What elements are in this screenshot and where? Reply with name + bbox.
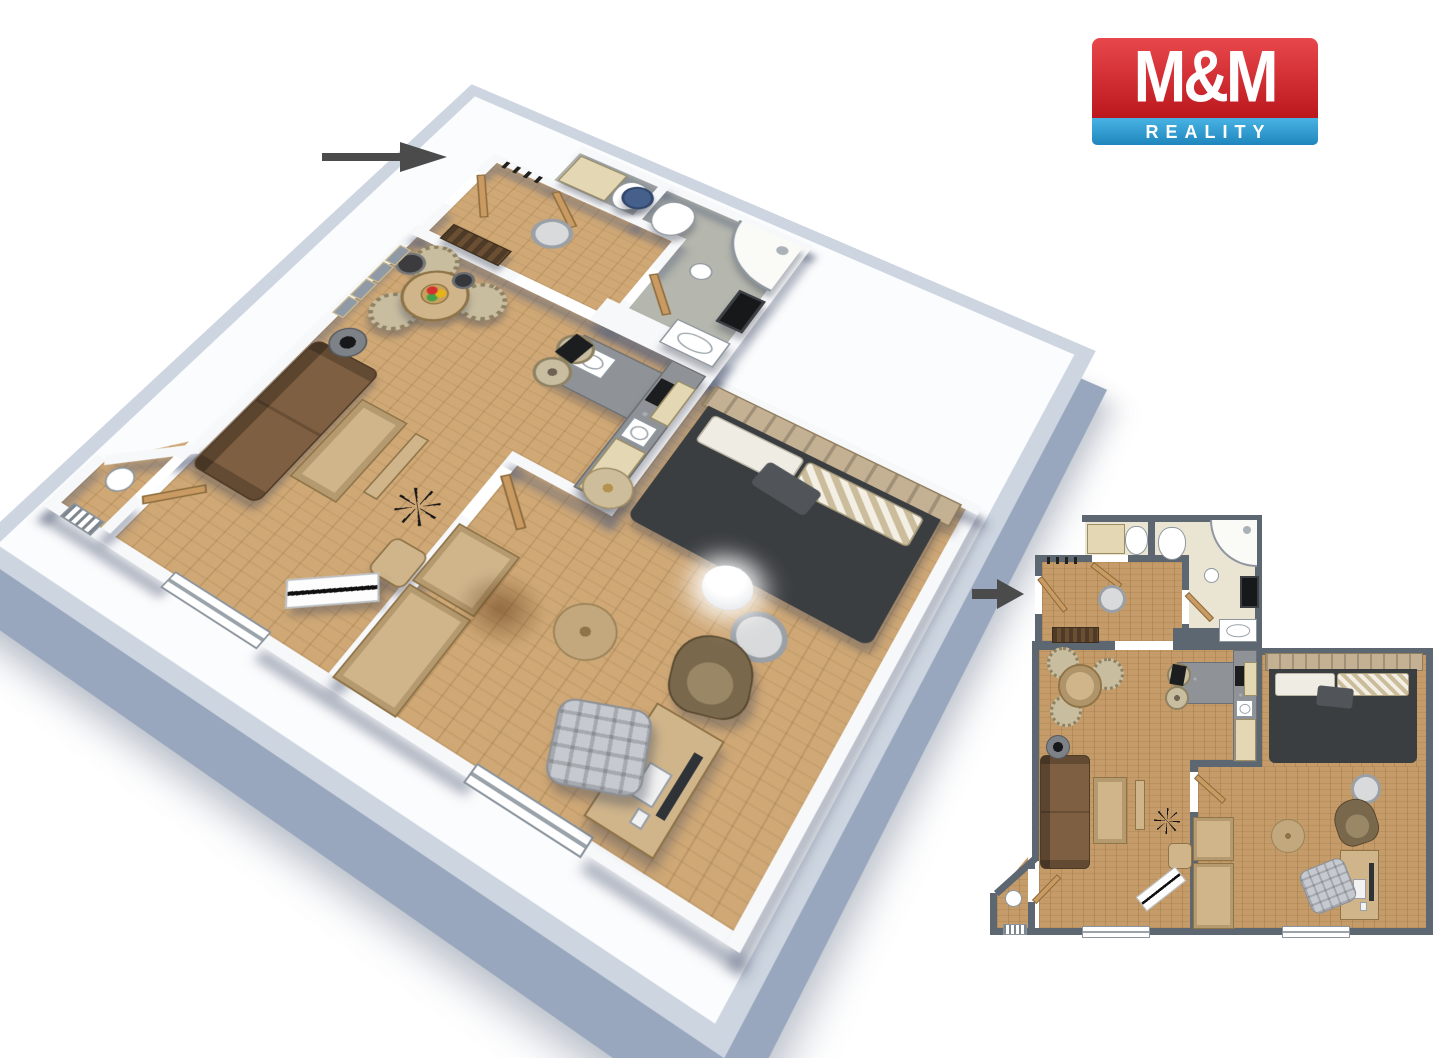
wall-left-hall-upper [1035, 562, 1042, 576]
round-dining-table [1058, 664, 1102, 708]
hall-ceiling-light [1098, 585, 1126, 613]
wardrobe-upper [1193, 817, 1234, 861]
balcony-radiator [1003, 924, 1027, 935]
logo-blue-panel: REALITY [1092, 118, 1318, 145]
wall-balcony-living-upper [1028, 861, 1035, 869]
living-pouf [1168, 843, 1192, 869]
wall-bottom-bedroom [1348, 928, 1433, 935]
wardrobe-lower [1193, 863, 1234, 929]
logo-red-panel: M&M [1092, 38, 1318, 118]
opening-wc-door [1092, 555, 1128, 562]
bathroom-toilet [1158, 527, 1186, 560]
apartment-floor-plan [0, 84, 1096, 1058]
coat-hooks [1047, 557, 1079, 564]
decorative-plant [1154, 808, 1180, 834]
wall-left-living [1032, 648, 1039, 861]
dishwasher [1236, 700, 1253, 717]
office-chair [543, 696, 654, 800]
wall-right-bedroom [1426, 648, 1433, 935]
entrance-arrow-3d-icon [322, 138, 447, 176]
mouse [1360, 902, 1367, 911]
apartment-floor-plan [988, 512, 1438, 967]
wall-balcony-living-lower [1028, 902, 1035, 928]
round-rug [1271, 819, 1305, 853]
logo-bottom-text: REALITY [1138, 123, 1271, 141]
wc-toilet [1125, 526, 1148, 555]
wc-storage-cabinet [1087, 524, 1125, 554]
computer-monitor [1369, 863, 1374, 901]
tv-console [1135, 780, 1145, 830]
sofa-side-table [1046, 735, 1070, 759]
mm-reality-logo: M&M REALITY [1092, 38, 1318, 145]
bathroom-stool [1204, 568, 1219, 583]
washing-machine [1240, 576, 1259, 608]
wall-bottom-living [1148, 928, 1282, 935]
bed-throw-pillow [1316, 685, 1354, 709]
opening-hall-living [1115, 641, 1173, 650]
logo-top-text: M&M [1134, 41, 1276, 114]
window-living-room [1082, 926, 1150, 938]
floor-plan-2d-view [988, 512, 1438, 967]
entrance-arrow-2d-icon [972, 575, 1024, 613]
kitchen-cabinet-tall [1235, 719, 1256, 761]
wall-hall-bath-upper [1182, 562, 1189, 590]
sofa [1040, 755, 1090, 869]
page: { "page": {"width": 1440, "height": 1018… [0, 0, 1440, 1018]
floor-plan-3d-view [0, 84, 1064, 990]
washbasin [1219, 619, 1257, 642]
kitchen-cabinet [1244, 662, 1257, 696]
shoe-bench [1052, 627, 1099, 643]
balcony-table [1005, 890, 1022, 907]
bar-stool [1165, 686, 1189, 710]
coffee-table [1093, 777, 1127, 844]
window-bedroom [1282, 926, 1350, 938]
